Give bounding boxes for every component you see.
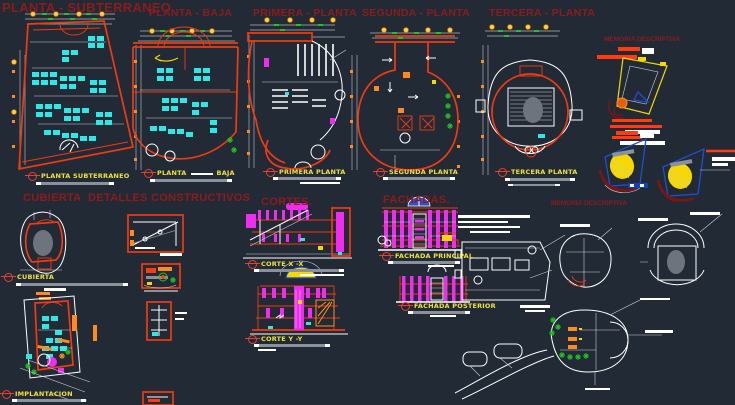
sheet-label-cubierta: CUBIERTA xyxy=(4,273,54,282)
datum-marker-icon xyxy=(401,302,410,311)
sheet-label-segunda-planta: SEGUNDA PLANTA xyxy=(376,168,458,177)
label-underline xyxy=(150,179,232,182)
label-underline xyxy=(12,399,86,402)
label-underline-2 xyxy=(508,184,560,186)
drawing-plan-annotated-2 xyxy=(560,228,612,288)
sheet-label-fachada-principal: FACHADA PRINCIPAL xyxy=(382,252,473,261)
datum-marker-icon xyxy=(376,168,385,177)
datum-marker-icon xyxy=(144,169,153,178)
drawing-implantacion xyxy=(20,288,97,401)
title-planta-subterraneo: PLANTA - SUBTERRANEO xyxy=(2,1,171,14)
title-planta-baja: PLANTA - BAJA xyxy=(149,8,232,19)
label-underline xyxy=(16,283,128,286)
drawing-detalle-4 xyxy=(143,392,173,405)
drawing-detalle-1 xyxy=(128,215,183,256)
datum-marker-icon xyxy=(382,252,391,261)
datum-marker-icon xyxy=(498,168,507,177)
datum-marker-icon xyxy=(248,335,257,344)
drawing-segunda-planta xyxy=(350,28,460,170)
label-underline xyxy=(408,311,470,314)
sheet-label-fachada-posterior: FACHADA POSTERIOR xyxy=(401,302,496,311)
label-underline-2 xyxy=(258,349,276,351)
sheet-label-primera-planta: PRIMERA PLANTA xyxy=(266,168,346,177)
label-divider-line xyxy=(191,173,213,175)
drawing-memoria-annotations xyxy=(458,212,720,233)
drawing-planta-baja xyxy=(133,27,238,170)
title-fachadas: FACHADAS. xyxy=(383,195,450,206)
drawing-corte-x xyxy=(243,203,352,258)
title-memoria-descriptiva-right: MEMORIA DESCRIPTIVA xyxy=(604,37,680,44)
label-underline-2 xyxy=(430,315,456,317)
drawing-planta-subterraneo xyxy=(12,12,133,169)
sheet-label-planta-subterraneo: PLANTA SUBTERRANEO xyxy=(28,172,129,181)
title-cubierta: CUBIERTA xyxy=(23,193,81,204)
drawing-plan-annotated-4 xyxy=(549,300,673,390)
sheet-label-corte-y: CORTE Y -Y xyxy=(248,335,303,344)
title-memoria-descriptiva-center: MEMORIA DESCRIPTIVA xyxy=(551,201,627,208)
sheet-label-implantacion: IMPLANTACION xyxy=(2,390,73,399)
label-underline-2 xyxy=(300,274,344,276)
datum-marker-icon xyxy=(2,390,11,399)
label-underline-2 xyxy=(428,265,454,267)
label-underline xyxy=(388,261,460,264)
drawing-fachada-posterior xyxy=(396,265,470,302)
sheet-label-tercera-planta: TERCERA PLANTA xyxy=(498,168,578,177)
drawing-ubicacion-1 xyxy=(600,131,654,193)
sheet-label-planta-baja: PLANTA BAJA xyxy=(144,169,235,178)
datum-marker-icon xyxy=(266,168,275,177)
datum-marker-icon xyxy=(28,172,37,181)
label-underline xyxy=(505,178,575,181)
drawing-tercera-planta xyxy=(476,25,582,175)
label-underline xyxy=(254,269,344,272)
sheet-label-corte-x: CORTE X -X xyxy=(248,260,304,269)
title-segunda-planta: SEGUNDA - PLANTA xyxy=(362,8,470,19)
title-cortes: CORTES. xyxy=(261,197,312,208)
label-underline-2 xyxy=(300,182,340,184)
drawing-memoria-site-plan xyxy=(597,47,667,145)
drawing-cubierta xyxy=(20,210,66,273)
datum-marker-icon xyxy=(4,273,13,282)
label-underline xyxy=(36,182,114,185)
label-underline xyxy=(254,344,330,347)
drawing-road-sketch xyxy=(455,344,554,399)
title-tercera-planta: TERCERA - PLANTA xyxy=(489,8,595,19)
drawing-primera-planta xyxy=(247,18,346,169)
datum-marker-icon xyxy=(248,260,257,269)
title-detalles-constructivos: DETALLES CONSTRUCTIVOS xyxy=(88,193,250,204)
label-underline xyxy=(273,177,341,180)
drawing-detalle-2 xyxy=(142,264,180,292)
drawing-ubicacion-2 xyxy=(658,149,735,201)
cad-canvas[interactable]: PLANTA - SUBTERRANEO PLANTA - BAJA PRIME… xyxy=(0,0,735,405)
title-primera-planta: PRIMERA - PLANTA xyxy=(253,8,357,19)
drawing-plan-annotated-3 xyxy=(640,214,722,300)
label-underline xyxy=(383,177,455,180)
drawing-plan-annotated-1 xyxy=(455,235,565,312)
drawing-detalle-3 xyxy=(147,302,187,340)
